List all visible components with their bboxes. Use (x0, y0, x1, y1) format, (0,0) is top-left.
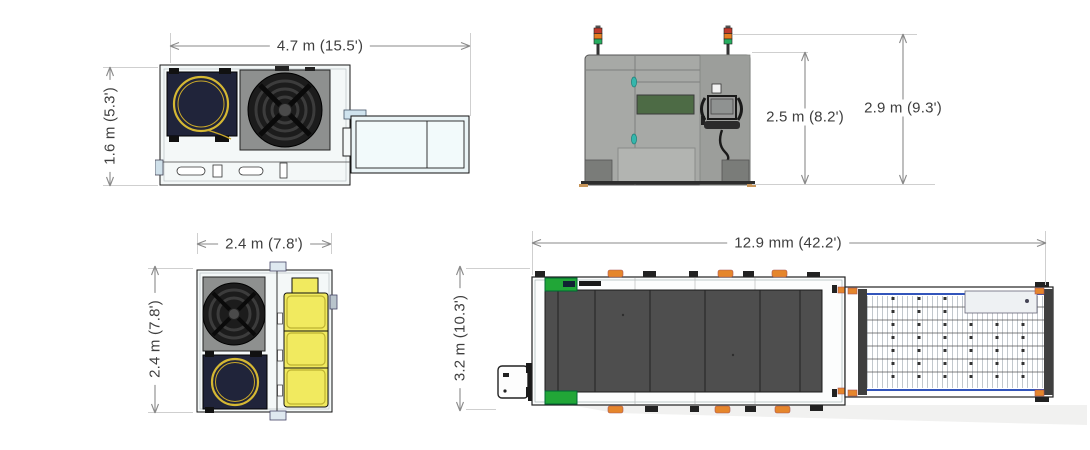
slat-table (845, 282, 1053, 402)
dimension-label-source-width: 4.7 m (15.5') (270, 38, 370, 55)
dimension-label-machine-length: 12.9 mm (42.2') (727, 235, 849, 252)
base-slot (177, 167, 205, 175)
source-unit-top-drawing (155, 58, 475, 198)
dimension-label-machine-width: 3.2 m (10.3') (452, 288, 469, 388)
extension-line (466, 409, 496, 410)
machine-top-drawing (475, 255, 1090, 430)
base-slot (239, 167, 263, 175)
dimension-label-chiller-depth: 2.4 m (7.8') (147, 293, 164, 385)
clamp (608, 406, 623, 413)
viewing-window (637, 95, 694, 114)
dimension-diagram: 4.7 m (15.5') 1.6 m (5.3') (0, 0, 1090, 450)
door-handle (631, 134, 636, 144)
signal-tower (724, 26, 732, 57)
cooling-fan-unit (240, 66, 330, 150)
dimension-label-source-depth: 1.6 m (5.3') (102, 80, 119, 172)
cooling-fan-unit (203, 277, 265, 351)
extension-line (466, 268, 530, 269)
exhaust-duct (343, 110, 469, 173)
clamp (718, 270, 733, 277)
signal-tower (594, 26, 602, 57)
bed-covers (545, 290, 822, 392)
machine-bed (532, 270, 848, 413)
machine-front-drawing (570, 20, 770, 190)
machine-cabinet (579, 55, 756, 187)
dimension-label-chiller-width: 2.4 m (7.8') (218, 236, 310, 253)
clamp (772, 270, 787, 277)
clamp (775, 406, 790, 413)
clamp (715, 406, 730, 413)
dust-collector-cartridges (284, 278, 328, 407)
drive-motor-box (498, 363, 533, 401)
door-handle (631, 77, 636, 87)
extension-line (733, 34, 917, 35)
fiber-coil-unit (167, 68, 237, 142)
dimension-label-total-height: 2.9 m (9.3') (857, 100, 949, 117)
chiller-top-drawing (190, 255, 340, 425)
fiber-coil-unit (203, 351, 267, 413)
laser-safety-block (545, 391, 577, 404)
clamp (608, 270, 623, 277)
dimension-label-cabinet-height: 2.5 m (8.2') (759, 109, 851, 126)
